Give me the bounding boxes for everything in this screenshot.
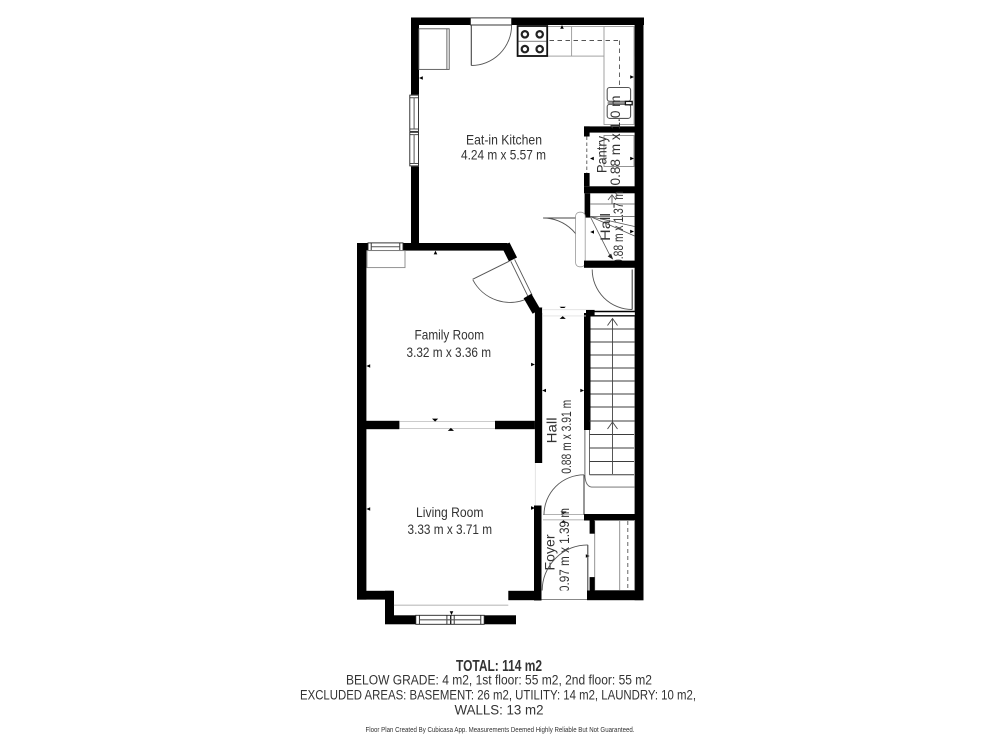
svg-text:WALLS: 13 m2: WALLS: 13 m2 — [455, 702, 544, 718]
svg-text:Hall: Hall — [545, 417, 560, 443]
svg-text:Floor Plan Created By Cubicasa: Floor Plan Created By Cubicasa App. Meas… — [366, 725, 635, 734]
svg-text:0.88 m x 1.0 m: 0.88 m x 1.0 m — [608, 96, 623, 186]
svg-text:0.88 m x 3.91 m: 0.88 m x 3.91 m — [559, 400, 574, 474]
svg-text:EXCLUDED AREAS: BASEMENT: 26 m: EXCLUDED AREAS: BASEMENT: 26 m2, UTILITY… — [300, 687, 696, 703]
svg-text:Family Room: Family Room — [415, 327, 485, 342]
svg-text:BELOW GRADE: 4 m2, 1st floor:: BELOW GRADE: 4 m2, 1st floor: 55 m2, 2nd… — [346, 672, 652, 688]
svg-text:Living Room: Living Room — [416, 505, 484, 520]
svg-text:3.32 m x 3.36 m: 3.32 m x 3.36 m — [407, 345, 492, 360]
svg-text:0.88 m x 1.37 m: 0.88 m x 1.37 m — [611, 191, 626, 265]
svg-text:0.97 m x 1.39 m: 0.97 m x 1.39 m — [557, 508, 572, 592]
svg-text:3.33 m x 3.71 m: 3.33 m x 3.71 m — [408, 522, 493, 537]
svg-text:4.24 m x 5.57 m: 4.24 m x 5.57 m — [461, 148, 546, 163]
svg-text:Eat-in Kitchen: Eat-in Kitchen — [466, 132, 542, 147]
